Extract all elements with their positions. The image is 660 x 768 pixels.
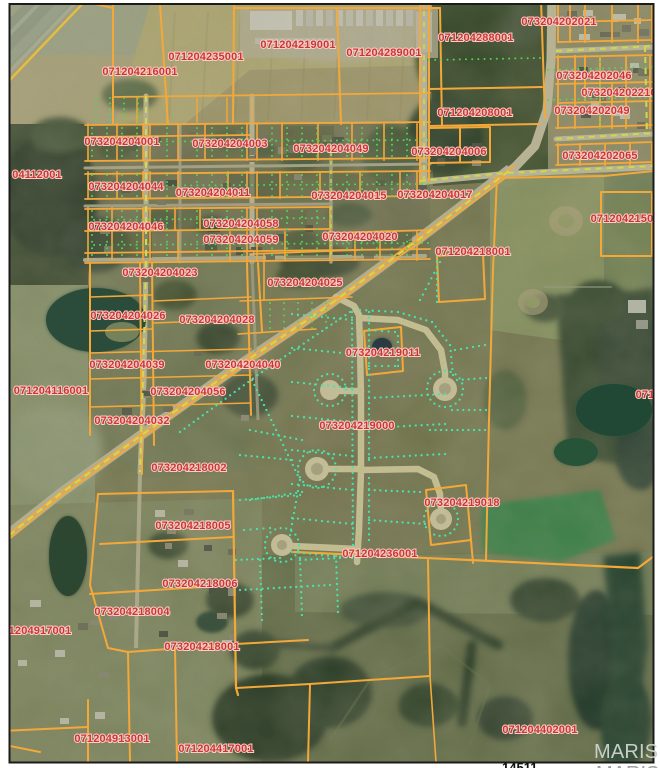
svg-text:073204204059: 073204204059 — [203, 234, 278, 246]
svg-text:073204219018: 073204219018 — [424, 497, 499, 509]
svg-text:071204235001: 071204235001 — [168, 51, 243, 63]
svg-text:073204204015: 073204204015 — [311, 190, 386, 202]
svg-text:071204289001: 071204289001 — [346, 47, 421, 59]
svg-text:14511: 14511 — [502, 760, 537, 768]
svg-text:071204913001: 071204913001 — [74, 733, 149, 745]
svg-text:073204218002: 073204218002 — [151, 462, 226, 474]
svg-text:073204218001: 073204218001 — [164, 641, 239, 653]
svg-text:MARIS: MARIS — [594, 741, 658, 763]
svg-text:073204218006: 073204218006 — [162, 578, 237, 590]
svg-text:1204917001: 1204917001 — [9, 625, 72, 637]
svg-text:073204204006: 073204204006 — [411, 146, 486, 158]
svg-text:073204204056: 073204204056 — [150, 386, 225, 398]
svg-text:071: 071 — [636, 389, 655, 401]
svg-text:073204202021: 073204202021 — [521, 16, 596, 28]
svg-text:073204204058: 073204204058 — [203, 218, 278, 230]
svg-text:071204219001: 071204219001 — [260, 39, 335, 51]
svg-text:073204219011: 073204219011 — [346, 347, 421, 359]
svg-text:04112001: 04112001 — [12, 169, 62, 181]
svg-text:073204204001: 073204204001 — [84, 136, 159, 148]
svg-text:071204208001: 071204208001 — [437, 107, 512, 119]
svg-text:073204204025: 073204204025 — [267, 277, 342, 289]
svg-text:073204202046: 073204202046 — [556, 70, 631, 82]
svg-text:071204116001: 071204116001 — [14, 385, 89, 397]
svg-text:073204204003: 073204204003 — [192, 138, 267, 150]
svg-text:073204204028: 073204204028 — [179, 314, 254, 326]
svg-text:073204204017: 073204204017 — [397, 189, 472, 201]
svg-text:073204218005: 073204218005 — [155, 520, 230, 532]
svg-text:073204204039: 073204204039 — [89, 359, 164, 371]
svg-text:073204204020: 073204204020 — [322, 231, 397, 243]
svg-text:071204236001: 071204236001 — [342, 548, 417, 560]
svg-text:073204219000: 073204219000 — [319, 420, 394, 432]
svg-text:0712042150: 0712042150 — [591, 213, 654, 225]
svg-text:073204204032: 073204204032 — [94, 415, 169, 427]
svg-text:073204204040: 073204204040 — [205, 359, 280, 371]
svg-text:071204417001: 071204417001 — [178, 743, 253, 755]
svg-text:073204202065: 073204202065 — [562, 150, 637, 162]
svg-text:073204204026: 073204204026 — [90, 310, 165, 322]
svg-text:071204288001: 071204288001 — [438, 32, 513, 44]
svg-text:073204204011: 073204204011 — [176, 187, 251, 199]
svg-text:071204216001: 071204216001 — [102, 66, 177, 78]
svg-text:073204204046: 073204204046 — [88, 221, 163, 233]
svg-text:071204402001: 071204402001 — [502, 724, 577, 736]
svg-text:073204202049: 073204202049 — [554, 105, 629, 117]
svg-text:MARIS: MARIS — [596, 763, 659, 768]
svg-text:073204204044: 073204204044 — [88, 181, 164, 193]
svg-text:073204204023: 073204204023 — [122, 267, 197, 279]
svg-text:071204218001: 071204218001 — [435, 246, 510, 258]
svg-text:073204204049: 073204204049 — [293, 143, 368, 155]
svg-text:073204218004: 073204218004 — [94, 606, 170, 618]
svg-text:073204202210: 073204202210 — [581, 87, 656, 99]
